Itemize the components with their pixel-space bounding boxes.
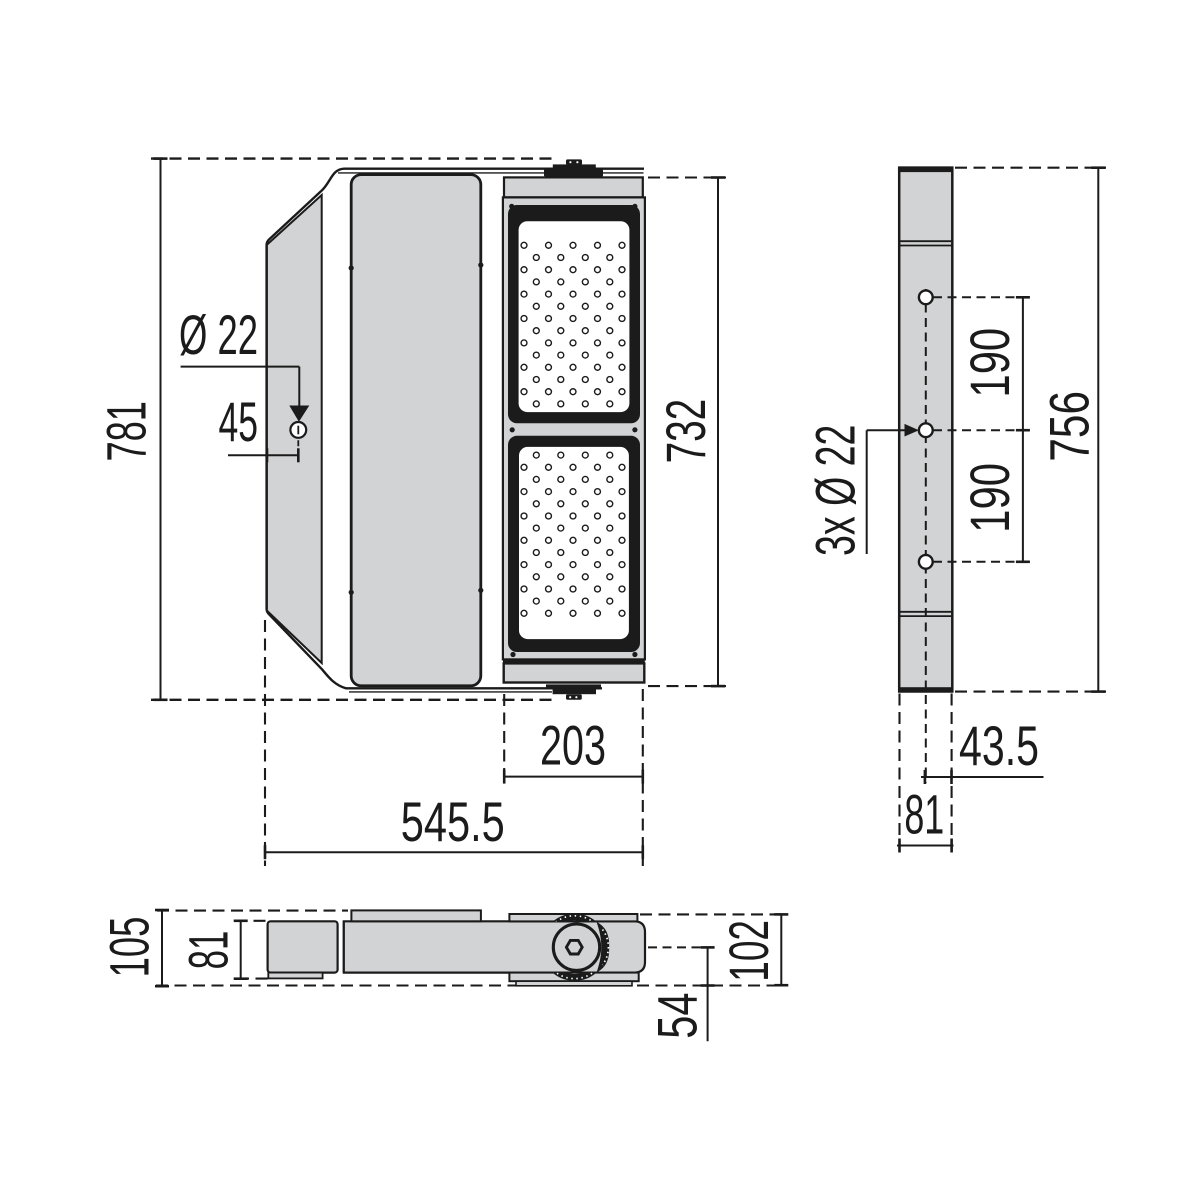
- svg-text:732: 732: [654, 399, 717, 464]
- svg-text:45: 45: [219, 390, 259, 453]
- svg-text:756: 756: [1038, 391, 1101, 462]
- svg-text:3x Ø 22: 3x Ø 22: [804, 425, 867, 556]
- svg-text:203: 203: [540, 713, 606, 776]
- svg-text:102: 102: [717, 920, 780, 982]
- svg-text:81: 81: [176, 931, 239, 970]
- svg-text:43.5: 43.5: [959, 714, 1039, 777]
- svg-text:190: 190: [958, 463, 1021, 533]
- svg-text:545.5: 545.5: [401, 790, 505, 853]
- svg-text:81: 81: [904, 782, 944, 845]
- svg-text:54: 54: [645, 992, 708, 1038]
- svg-text:190: 190: [958, 328, 1021, 398]
- svg-text:781: 781: [94, 401, 157, 462]
- svg-text:Ø 22: Ø 22: [179, 303, 258, 366]
- svg-text:105: 105: [98, 917, 161, 978]
